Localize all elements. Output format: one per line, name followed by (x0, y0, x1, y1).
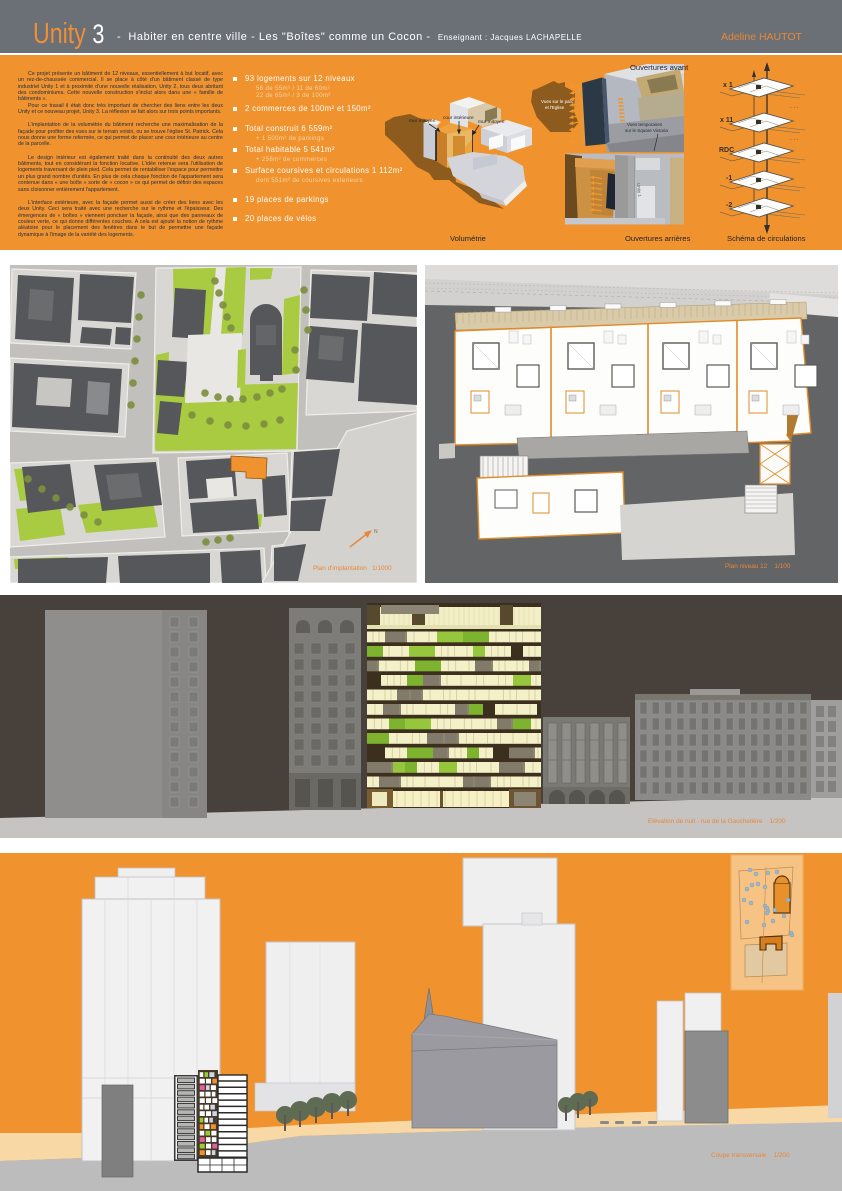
svg-text:Coupe transversale 1/200: Coupe transversale 1/200 (711, 1152, 790, 1159)
svg-text:Plan niveau 12 1/100: Plan niveau 12 1/100 (725, 563, 791, 570)
svg-text:Elévation de nuit - rue de la: Elévation de nuit - rue de la Gauchetièr… (648, 818, 786, 825)
svg-text:RDC: RDC (719, 147, 734, 154)
svg-text:et l'Eglise: et l'Eglise (545, 105, 565, 110)
svg-text:Plan d'implantation 1/1000: Plan d'implantation 1/1000 (313, 565, 392, 572)
svg-text:. . .: . . . (790, 136, 799, 142)
svg-text:Ouvertures arrières: Ouvertures arrières (625, 234, 691, 243)
svg-text:Vues sur le parc: Vues sur le parc (541, 99, 574, 104)
svg-text:. . .: . . . (790, 104, 799, 110)
svg-text:Schéma de circulations: Schéma de circulations (727, 234, 806, 243)
svg-text:Volumétrie: Volumétrie (450, 234, 486, 243)
svg-text:N: N (374, 529, 378, 535)
svg-text:mur mitoyen: mur mitoyen (409, 118, 436, 124)
svg-text:x 11: x 11 (720, 117, 733, 124)
svg-text:cour intérieure: cour intérieure (443, 115, 474, 121)
svg-text:x 1: x 1 (723, 82, 733, 89)
svg-text:sur le Square Victoria: sur le Square Victoria (625, 128, 668, 133)
svg-text:Vues temporaires: Vues temporaires (627, 122, 663, 127)
svg-text:Ouvertures avant: Ouvertures avant (630, 63, 689, 72)
svg-text:-1: -1 (726, 175, 732, 182)
svg-text:mur mitoyen: mur mitoyen (478, 119, 505, 125)
svg-text:-2: -2 (726, 202, 732, 209)
